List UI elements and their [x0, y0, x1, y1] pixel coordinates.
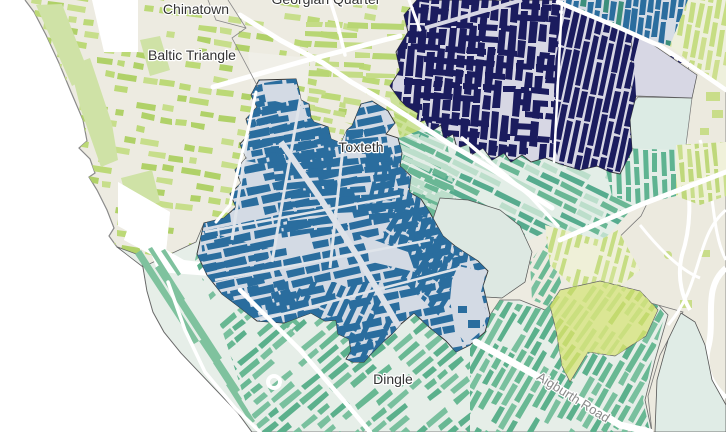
svg-text:Chinatown: Chinatown [163, 1, 229, 17]
svg-text:Baltic Triangle: Baltic Triangle [148, 47, 236, 63]
svg-text:Dingle: Dingle [373, 371, 413, 387]
svg-text:Toxteth: Toxteth [338, 139, 383, 155]
svg-text:Georgian Quarter: Georgian Quarter [272, 0, 381, 7]
